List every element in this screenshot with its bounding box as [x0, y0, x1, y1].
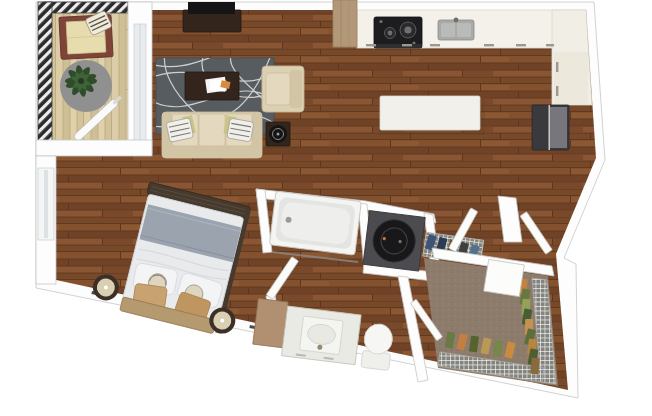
kitchen-island — [380, 96, 480, 130]
kitchen-sink — [438, 18, 474, 40]
bedroom-window-wall — [36, 156, 56, 284]
sofa — [162, 112, 262, 158]
cooktop — [374, 17, 422, 48]
bathtub — [269, 191, 361, 255]
side-table — [266, 122, 290, 146]
kitchen-cabinet-front — [554, 52, 588, 104]
wood-column — [333, 0, 357, 47]
balcony — [38, 2, 128, 142]
wall-below-balcony — [36, 140, 152, 156]
armchair — [262, 66, 304, 112]
closet-open-door-panel — [484, 259, 525, 296]
coffee-table — [185, 72, 239, 100]
refrigerator — [532, 105, 569, 150]
floor-plan-svg — [0, 0, 652, 416]
balcony-railing-left — [38, 2, 52, 142]
floor-plan-image — [0, 0, 652, 416]
tv — [188, 2, 235, 14]
balcony-divider-wall — [128, 2, 152, 154]
window-glass — [44, 170, 48, 238]
balcony-railing-top — [44, 2, 128, 13]
washer — [363, 211, 425, 271]
vanity-wood-counter — [253, 298, 288, 347]
